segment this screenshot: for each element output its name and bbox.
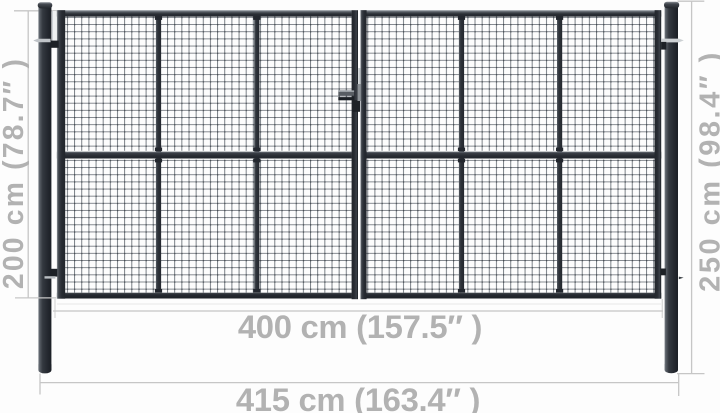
svg-text:250 cm (98.4″ ): 250 cm (98.4″ ) xyxy=(695,50,720,292)
svg-text:415 cm (163.4″ ): 415 cm (163.4″ ) xyxy=(236,381,480,413)
svg-text:400 cm (157.5″ ): 400 cm (157.5″ ) xyxy=(238,308,482,345)
svg-text:200 cm (78.7″ ): 200 cm (78.7″ ) xyxy=(0,57,29,289)
